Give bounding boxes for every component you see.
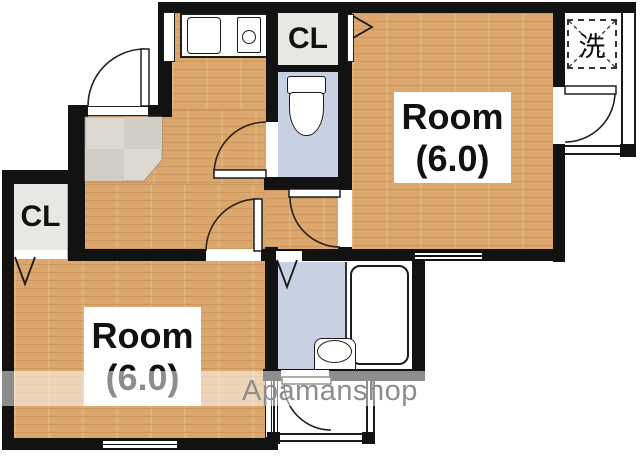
wall-closet-column-left [266,10,278,123]
floorplan: 洗 [0,0,640,457]
bathtub [350,265,409,365]
wall-entry-stub-right [148,105,172,117]
kitchen-sink [187,17,221,54]
balcony-top-post [620,144,636,157]
bathtub-deck-divider [345,262,347,340]
balcony-bottom-edge-bottom-a [273,433,375,435]
toilet-door-opening [266,122,278,177]
room1-bottom-window [103,439,177,450]
balcony-top-sill-b [565,153,623,155]
wall-bath-right [412,253,425,381]
wall-closet-toilet-divider [278,65,338,72]
room1-door-opening [206,249,261,261]
room-top-right-label: Room (6.0) [394,92,511,183]
room-name: Room [402,96,504,137]
balcony-top-door-leaf [565,86,616,94]
stove-burner-icon [242,30,256,44]
wall-left-lower [2,170,14,450]
balcony-top-door-arc [565,92,615,142]
balcony-bottom-edge-bottom-b [273,440,375,442]
balcony-top-rail-outer [634,13,636,157]
laundry-space: 洗 [567,19,617,69]
closet-top-opening [347,14,354,62]
balcony-bottom-post-left [267,432,280,444]
watermark-text: Apamanshop [242,375,418,408]
bath-folding-door-opening [276,251,302,261]
balcony-bottom-post-right [362,432,375,444]
closet-bottom-label: CL [14,184,67,250]
room-name: Room [92,315,194,356]
closet-top-label: CL [278,13,338,65]
entry-door-leaf [141,49,149,106]
entry-door-sill [88,106,148,116]
wall-hall-bottom [68,249,565,261]
entry-door-arc [88,49,145,106]
balcony-top-rail-inner [621,13,623,147]
wall-left-middle [68,105,85,261]
room2-door-opening [338,190,352,247]
wall-room1-right [265,247,278,381]
wall-niche [163,12,175,62]
balcony-top-sill-a [565,145,623,147]
room2-bottom-window [415,251,482,261]
room-size: (6.0) [415,138,489,179]
washbasin-bowl [317,340,352,363]
balcony-top-door-opening [553,87,565,144]
laundry-label: 洗 [577,25,608,64]
closet-bottom-opening [14,250,67,259]
